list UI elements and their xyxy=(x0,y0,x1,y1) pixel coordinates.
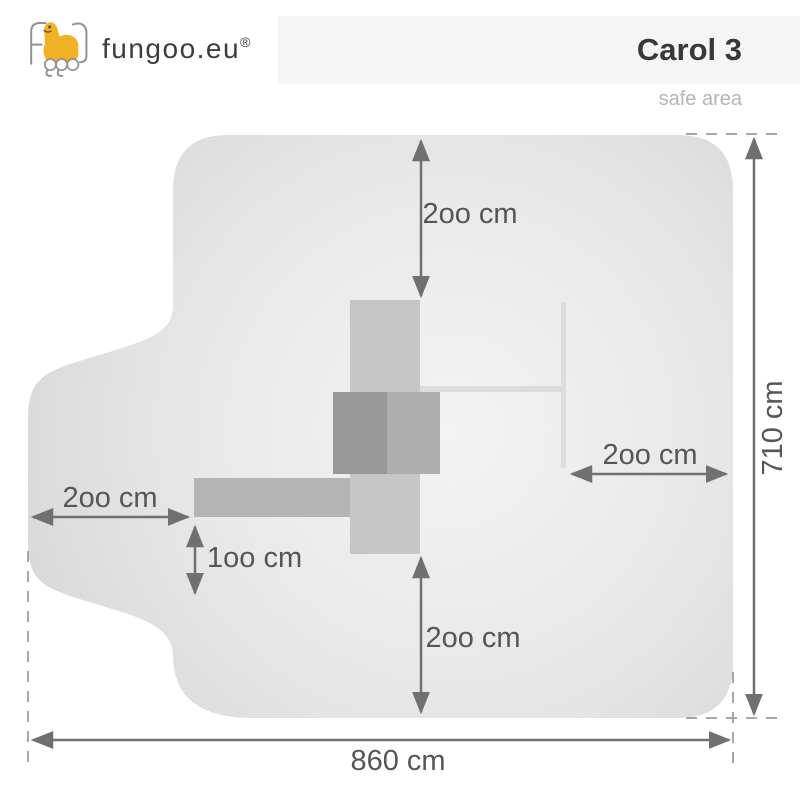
dim-label-bottom: 2oo cm xyxy=(425,622,520,654)
slide-arm xyxy=(194,478,354,517)
dim-label-left: 2oo cm xyxy=(62,482,157,514)
platform-medium xyxy=(387,392,440,474)
dim-label-total-height: 710 cm xyxy=(757,380,789,475)
dim-label-right: 2oo cm xyxy=(602,439,697,471)
dim-label-left-offset: 1oo cm xyxy=(207,542,302,574)
swing-beam-horizontal xyxy=(420,386,566,392)
dim-label-top: 2oo cm xyxy=(422,198,517,230)
dim-label-total-width: 860 cm xyxy=(350,745,445,777)
tower-top xyxy=(350,300,420,393)
platform-dark xyxy=(333,392,387,474)
tower-bottom xyxy=(350,474,420,554)
safe-area-diagram: 2oo cm 2oo cm 2oo cm 1oo cm 2oo cm 710 c… xyxy=(0,0,800,800)
page: fungoo.eu® Carol 3 safe area xyxy=(0,0,800,800)
swing-beam-vertical xyxy=(561,302,566,468)
